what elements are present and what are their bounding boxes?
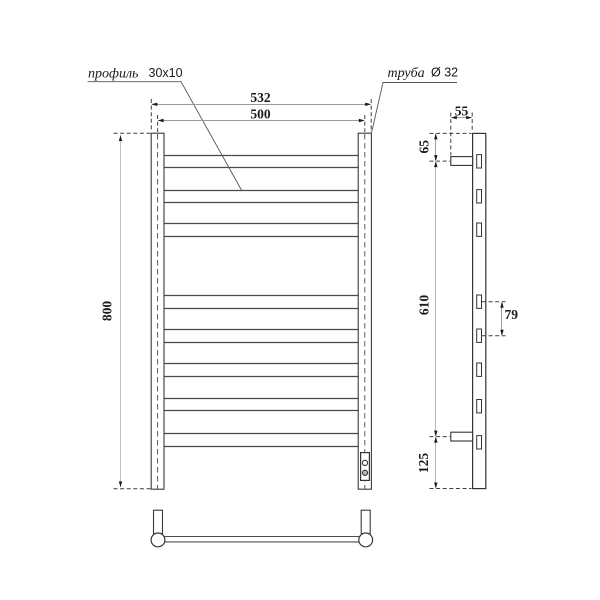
svg-text:труба: труба [388, 66, 425, 81]
svg-text:500: 500 [250, 106, 271, 121]
svg-text:532: 532 [250, 90, 271, 105]
svg-text:800: 800 [100, 301, 115, 322]
svg-text:125: 125 [416, 453, 431, 474]
svg-text:610: 610 [417, 295, 432, 316]
svg-text:79: 79 [505, 307, 519, 322]
svg-text:профиль: профиль [88, 67, 138, 82]
svg-text:65: 65 [417, 140, 432, 154]
svg-text:30х10: 30х10 [149, 66, 183, 80]
svg-text:Ø 32: Ø 32 [431, 66, 458, 80]
